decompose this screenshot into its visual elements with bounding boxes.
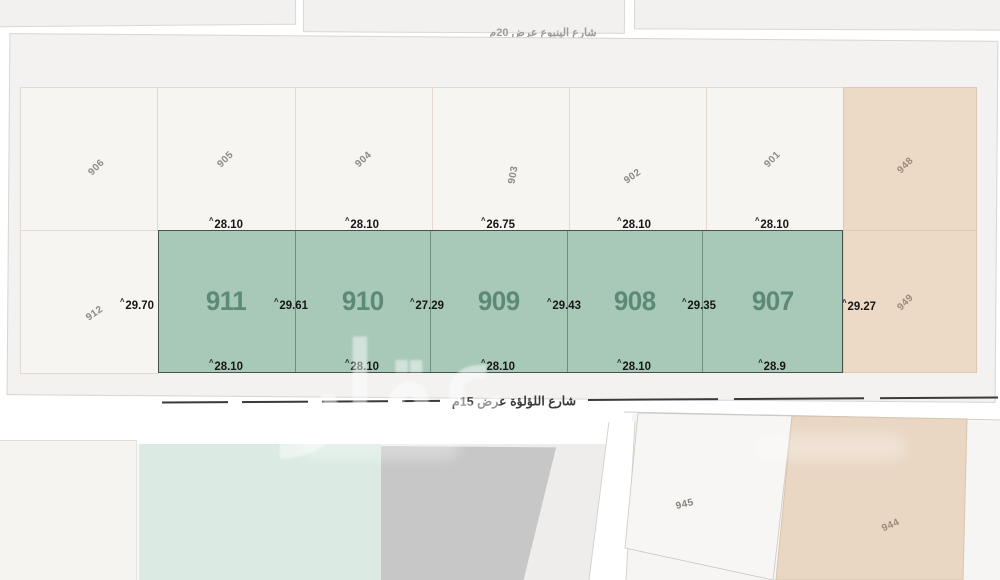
plot-number: 907	[752, 286, 794, 317]
dim-top-911: ^28.10	[186, 213, 266, 229]
block-bottom-right	[580, 400, 1000, 580]
dim-left-910: ^29.61	[251, 294, 331, 310]
dim-top-907: ^28.10	[732, 213, 812, 229]
dim-left-908: ^29.43	[524, 294, 604, 310]
dim-right-907: ^29.27	[842, 295, 922, 311]
plot-number: 909	[478, 286, 520, 317]
street-dash-line	[162, 400, 440, 404]
block-top-left	[0, 0, 296, 27]
dim-bottom-911: ^28.10	[186, 355, 266, 371]
parcel-903	[432, 87, 570, 231]
dim-left-909: ^27.29	[387, 294, 467, 310]
dim-top-910: ^28.10	[322, 213, 402, 229]
dim-bottom-908: ^28.10	[594, 355, 674, 371]
dim-top-908: ^28.10	[594, 213, 674, 229]
parcel-902	[569, 87, 707, 231]
block-top-right	[634, 0, 1000, 31]
dim-left-911: ^29.70	[97, 294, 177, 310]
plot-number: 908	[614, 286, 656, 317]
dim-left-907: ^29.35	[659, 294, 739, 310]
dim-top-909: ^26.75	[458, 213, 538, 229]
plot-number: 911	[206, 286, 246, 317]
map-canvas[interactable]: شارع الينبوع عرض 20م 906 905 904 903 902…	[0, 0, 1000, 580]
dim-bottom-907: ^28.9	[732, 355, 812, 371]
plot-number: 910	[342, 286, 384, 317]
plot-teal	[137, 444, 381, 580]
street-label-bottom: شارع اللؤلؤة عرض 15م	[452, 393, 576, 409]
dim-bottom-910: ^28.10	[322, 355, 402, 371]
parcel-906	[20, 87, 158, 231]
dim-bottom-909: ^28.10	[458, 355, 538, 371]
block-bottom-left	[0, 440, 137, 580]
